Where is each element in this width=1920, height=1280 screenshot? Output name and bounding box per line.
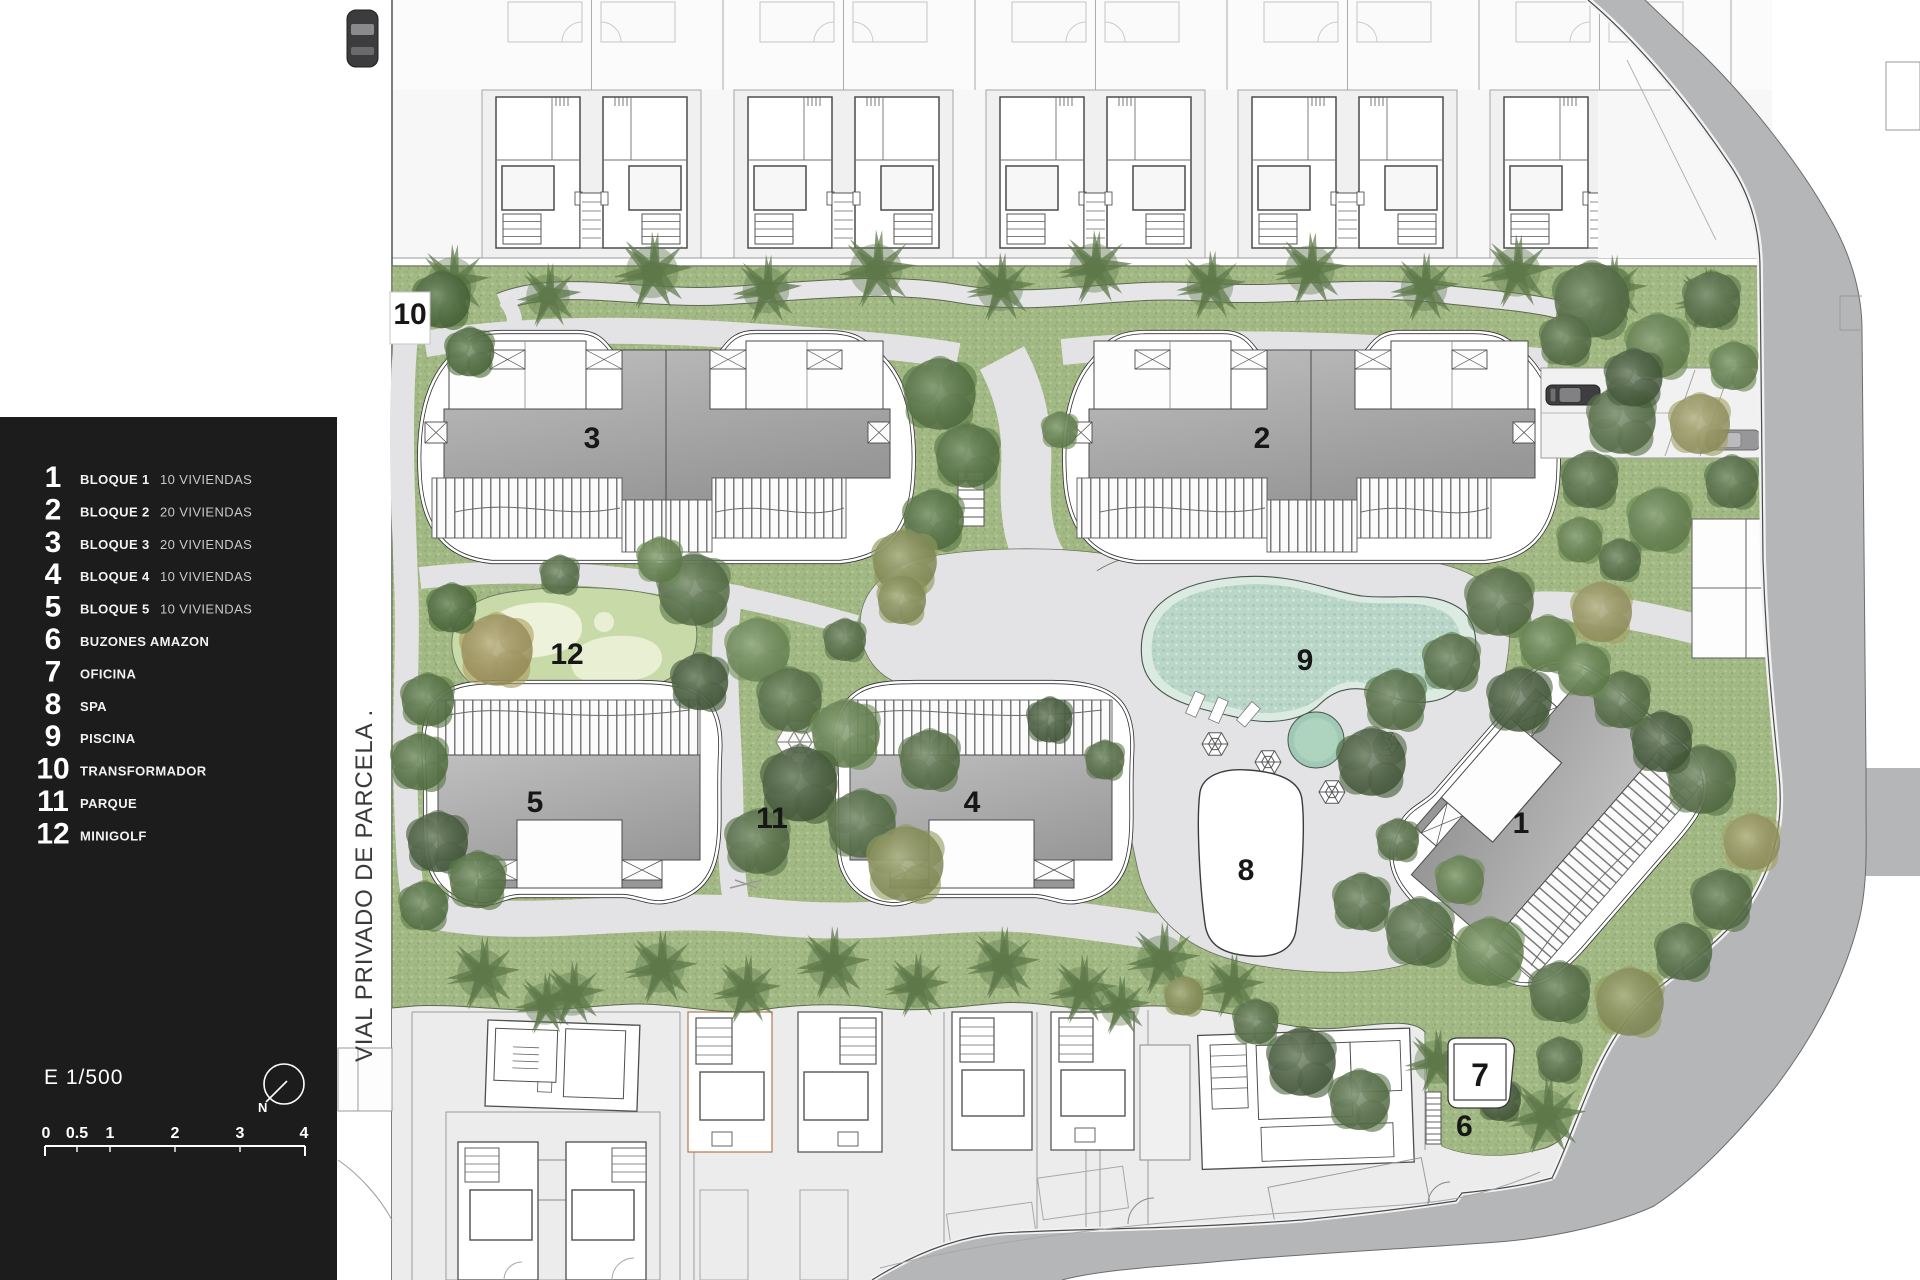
svg-text:10: 10 xyxy=(393,298,426,331)
svg-text:3: 3 xyxy=(236,1125,245,1142)
svg-text:5: 5 xyxy=(45,591,62,624)
svg-text:PISCINA: PISCINA xyxy=(80,731,136,746)
svg-text:2: 2 xyxy=(45,493,62,526)
svg-text:10 VIVIENDAS: 10 VIVIENDAS xyxy=(160,472,252,487)
svg-text:20 VIVIENDAS: 20 VIVIENDAS xyxy=(160,537,252,552)
svg-text:MINIGOLF: MINIGOLF xyxy=(80,828,147,843)
svg-text:11: 11 xyxy=(756,802,788,835)
svg-text:4: 4 xyxy=(964,786,981,819)
svg-text:OFICINA: OFICINA xyxy=(80,666,136,681)
svg-text:1: 1 xyxy=(45,461,62,494)
svg-text:4: 4 xyxy=(45,558,62,591)
svg-text:10 VIVIENDAS: 10 VIVIENDAS xyxy=(160,602,252,617)
svg-text:8: 8 xyxy=(1238,854,1255,887)
svg-text:BLOQUE 4: BLOQUE 4 xyxy=(80,569,150,584)
svg-text:BLOQUE 5: BLOQUE 5 xyxy=(80,602,150,617)
svg-text:BLOQUE 2: BLOQUE 2 xyxy=(80,504,150,519)
svg-text:0.5: 0.5 xyxy=(66,1125,88,1142)
svg-text:7: 7 xyxy=(1471,1057,1489,1093)
svg-text:E 1/500: E 1/500 xyxy=(44,1066,123,1089)
svg-text:5: 5 xyxy=(527,786,544,819)
svg-text:6: 6 xyxy=(45,623,62,656)
svg-text:1: 1 xyxy=(1513,807,1530,840)
svg-text:N: N xyxy=(258,1100,267,1115)
svg-text:VIAL PRIVADO DE PARCELA .: VIAL PRIVADO DE PARCELA . xyxy=(351,709,378,1062)
svg-text:12: 12 xyxy=(36,817,69,850)
svg-text:4: 4 xyxy=(300,1125,309,1142)
svg-text:2: 2 xyxy=(171,1125,180,1142)
svg-text:PARQUE: PARQUE xyxy=(80,796,137,811)
svg-text:9: 9 xyxy=(1297,644,1314,677)
svg-text:9: 9 xyxy=(45,720,62,753)
svg-text:0: 0 xyxy=(42,1125,51,1142)
svg-text:SPA: SPA xyxy=(80,699,107,714)
svg-text:BUZONES AMAZON: BUZONES AMAZON xyxy=(80,634,209,649)
svg-text:1: 1 xyxy=(106,1125,115,1142)
svg-text:3: 3 xyxy=(584,422,601,455)
svg-text:11: 11 xyxy=(37,785,69,818)
svg-text:2: 2 xyxy=(1254,422,1271,455)
svg-text:10: 10 xyxy=(36,753,69,786)
svg-text:20 VIVIENDAS: 20 VIVIENDAS xyxy=(160,504,252,519)
svg-text:3: 3 xyxy=(45,526,62,559)
svg-text:TRANSFORMADOR: TRANSFORMADOR xyxy=(80,764,207,779)
svg-text:8: 8 xyxy=(45,688,62,721)
svg-text:BLOQUE 1: BLOQUE 1 xyxy=(80,472,150,487)
svg-text:BLOQUE 3: BLOQUE 3 xyxy=(80,537,150,552)
svg-text:12: 12 xyxy=(550,638,583,671)
svg-text:10 VIVIENDAS: 10 VIVIENDAS xyxy=(160,569,252,584)
svg-text:6: 6 xyxy=(1456,1110,1473,1143)
svg-text:7: 7 xyxy=(45,655,62,688)
